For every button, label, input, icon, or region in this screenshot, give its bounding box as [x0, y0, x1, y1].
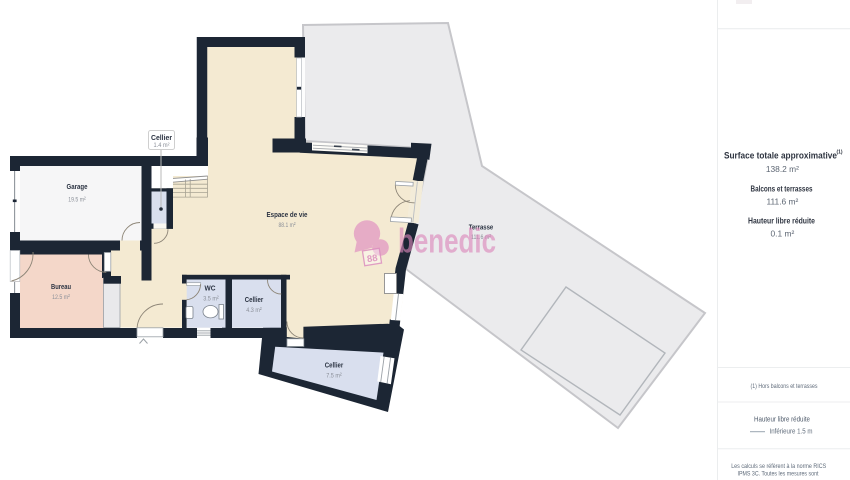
- svg-text:Hauteur libre réduite: Hauteur libre réduite: [754, 415, 810, 424]
- svg-text:Cellier: Cellier: [245, 295, 264, 304]
- svg-text:Bureau: Bureau: [51, 282, 71, 291]
- svg-text:88.1 m²: 88.1 m²: [279, 222, 297, 229]
- svg-text:138.2 m²: 138.2 m²: [766, 164, 799, 174]
- svg-text:Garage: Garage: [67, 182, 88, 191]
- svg-text:111.6 m²: 111.6 m²: [766, 197, 798, 207]
- svg-text:Cellier: Cellier: [151, 135, 172, 142]
- svg-text:Espace de vie: Espace de vie: [267, 210, 308, 219]
- svg-text:Hauteur libre réduite: Hauteur libre réduite: [748, 217, 815, 226]
- svg-text:0.1 m²: 0.1 m²: [771, 229, 795, 239]
- svg-text:IPMS 3C. Toutes les mesures so: IPMS 3C. Toutes les mesures sont: [738, 471, 819, 478]
- svg-text:Inférieure 1.5 m: Inférieure 1.5 m: [770, 427, 813, 436]
- svg-text:7.5 m²: 7.5 m²: [326, 373, 342, 380]
- svg-text:12.5 m²: 12.5 m²: [52, 294, 70, 301]
- svg-text:88: 88: [366, 253, 378, 266]
- svg-text:19.5 m²: 19.5 m²: [68, 197, 86, 204]
- svg-text:Surface totale approximative: Surface totale approximative: [724, 151, 837, 161]
- svg-text:WC: WC: [205, 284, 216, 293]
- svg-text:3.5 m²: 3.5 m²: [203, 296, 219, 303]
- svg-text:Les calculs se réfèrent à la n: Les calculs se réfèrent à la norme RICS: [731, 463, 826, 470]
- svg-text:4.3 m²: 4.3 m²: [246, 307, 262, 314]
- svg-text:Balcons et terrasses: Balcons et terrasses: [751, 185, 813, 194]
- svg-text:Cellier: Cellier: [325, 361, 344, 370]
- svg-text:(1) Hors balcons et terrasses: (1) Hors balcons et terrasses: [751, 383, 819, 390]
- svg-text:1.4 m²: 1.4 m²: [154, 142, 170, 149]
- svg-text:(1): (1): [836, 150, 842, 156]
- svg-text:benedic: benedic: [398, 223, 496, 261]
